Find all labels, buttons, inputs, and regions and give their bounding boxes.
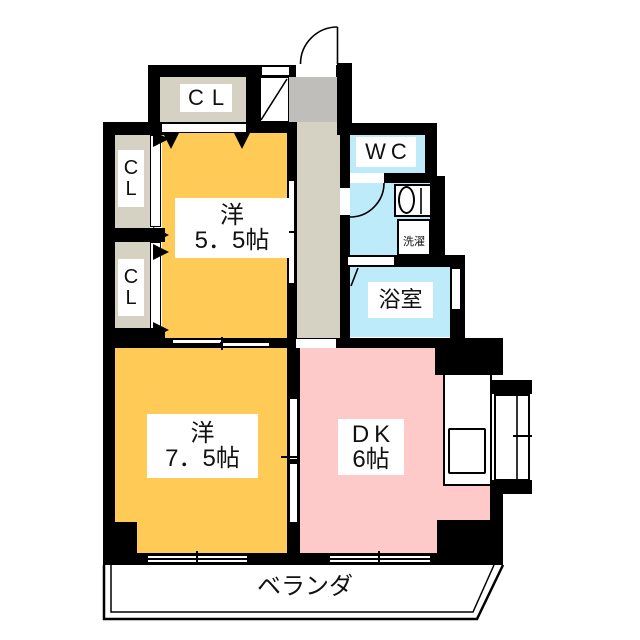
dk-slider-panel-b <box>289 463 298 523</box>
room-slider-panel-b <box>220 342 270 347</box>
wall-dk-topright <box>435 338 503 375</box>
veranda-text: ベランダ <box>257 574 353 599</box>
laundry-label: 洗濯 <box>398 233 430 253</box>
room-7-5-size: 7．5帖 <box>165 446 240 471</box>
laundry-text: 洗濯 <box>403 237 425 249</box>
wall-washroom-right <box>430 176 445 262</box>
closet-lower-door <box>150 242 161 329</box>
wall-wc-top <box>340 123 437 135</box>
closet-lower-l: L <box>125 288 136 309</box>
wc-door-opening <box>350 173 384 183</box>
floorplan: CL C L C L WC 浴室 洗濯 洋 5．5帖 洋 7．5帖 DK 6帖 … <box>0 0 640 640</box>
room-5-5-label: 洋 5．5帖 <box>175 198 289 258</box>
closet-top-label: CL <box>180 84 232 112</box>
bathroom-text: 浴室 <box>378 288 422 311</box>
wall-closet-divider <box>103 228 165 242</box>
closet-lower-label: C L <box>118 259 144 316</box>
entrance-floor <box>289 77 337 122</box>
room-5-5-name: 洋 <box>220 203 244 228</box>
wall-corridor-right <box>340 135 350 338</box>
closet-upper-l: L <box>125 179 136 200</box>
bay-window-cap-top <box>492 380 532 394</box>
room-5-5-size: 5．5帖 <box>195 228 270 253</box>
room-7-5-label: 洋 7．5帖 <box>147 414 258 478</box>
bay-window <box>494 394 530 481</box>
entrance-door-opening <box>296 65 336 77</box>
closet-upper-door <box>150 135 161 227</box>
hallway-floor <box>297 122 340 338</box>
room-slider-panel-a <box>172 339 224 344</box>
entrance-side-window <box>262 67 289 75</box>
window-dk <box>330 554 430 564</box>
entrance-door-arc <box>301 27 338 64</box>
bath-door-opening <box>348 257 394 265</box>
wall-closet-top <box>103 122 165 135</box>
sliding-door-5-5 <box>288 180 295 284</box>
closet-upper-label: C L <box>118 150 144 207</box>
wall-mid-horizontal <box>103 338 465 348</box>
closet-upper-c: C <box>124 158 138 179</box>
room-7-5-name: 洋 <box>191 421 215 446</box>
closet-lower-c: C <box>124 267 138 288</box>
wall-pillar <box>115 522 137 553</box>
dk-size: 6帖 <box>352 447 389 472</box>
window-room-7-5 <box>148 554 247 564</box>
bay-window-cap-bottom <box>492 480 532 494</box>
closet-top-text: CL <box>188 86 232 109</box>
shoe-cabinet <box>260 77 289 122</box>
wc-text: WC <box>365 140 412 163</box>
vanity-basin <box>398 186 415 214</box>
dk-name: DK <box>352 422 395 447</box>
dk-slider-panel-a <box>289 398 298 460</box>
hall-dk-opening <box>296 339 336 348</box>
washroom-door-opening <box>340 188 350 215</box>
bathroom-label: 浴室 <box>368 282 433 318</box>
kitchen-sink <box>448 428 486 474</box>
veranda-label: ベランダ <box>230 572 380 602</box>
dk-label: DK 6帖 <box>338 419 404 475</box>
bath-window <box>451 268 461 310</box>
closet-top-door-band <box>162 122 246 133</box>
wc-label: WC <box>356 137 416 167</box>
